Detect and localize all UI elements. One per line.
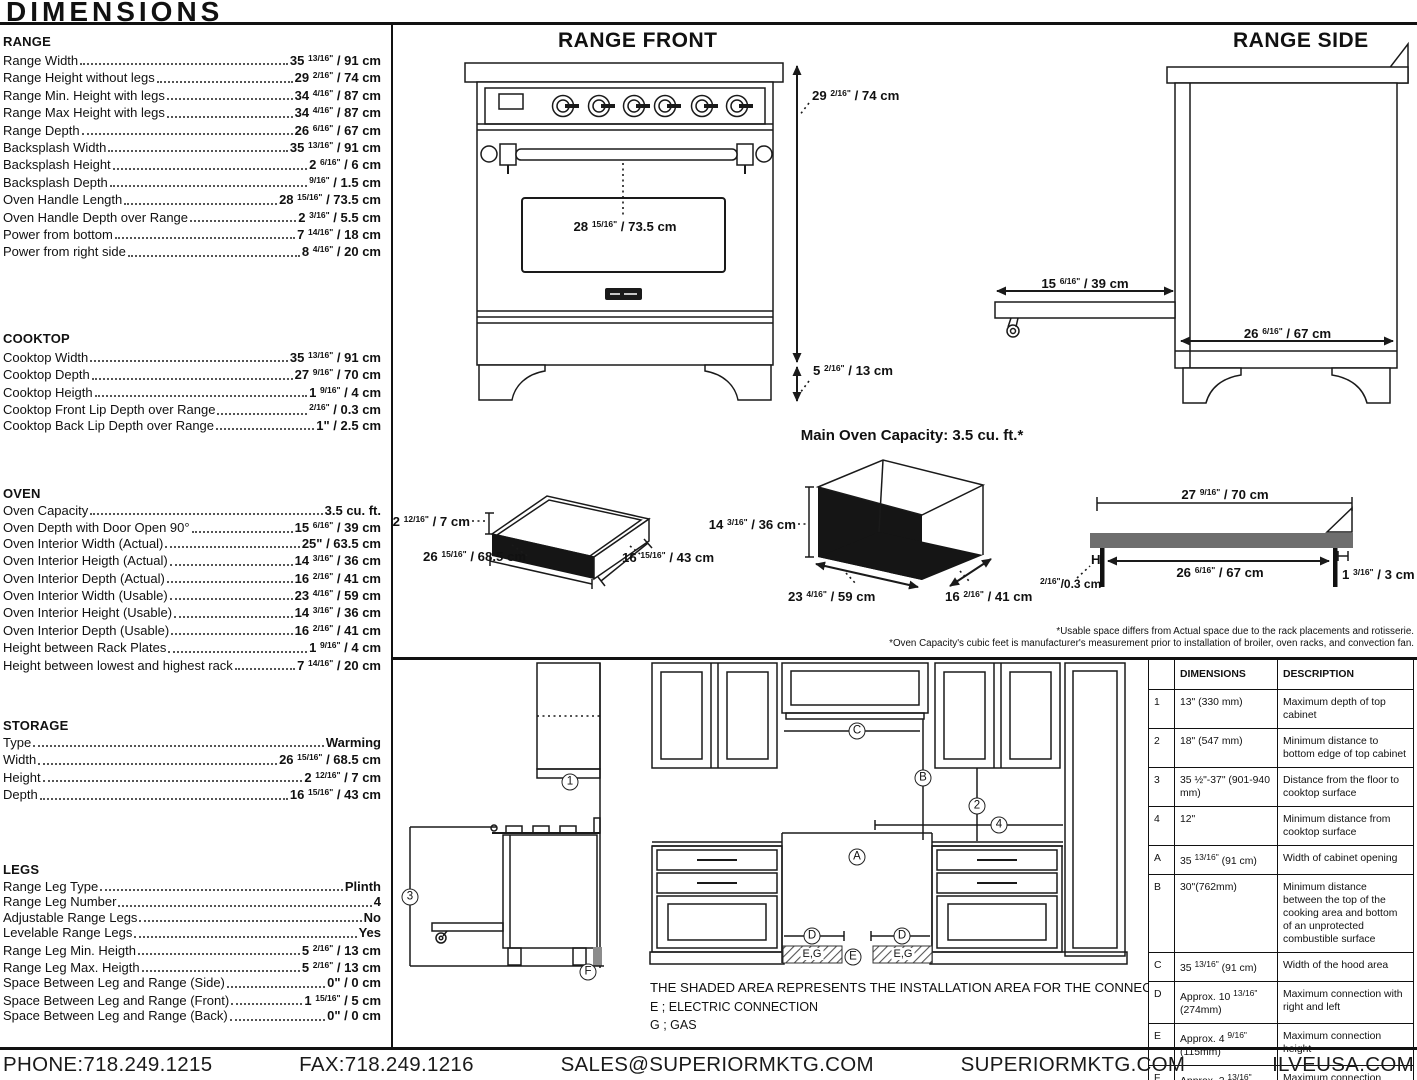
rack-top-label: 27 9/16" / 70 cm bbox=[1140, 487, 1310, 502]
spec-label: Height bbox=[3, 770, 41, 785]
dot-leader bbox=[95, 395, 307, 397]
spec-label: Range Leg Min. Heigth bbox=[3, 943, 136, 958]
spec-value: 2/16" / 0.3 cm bbox=[309, 400, 381, 417]
rack-left-label: 2/16"/0.3 cm bbox=[1040, 576, 1101, 591]
spec-value: 0" / 0 cm bbox=[327, 975, 381, 990]
range-side-depth-label: 26 6/16" / 67 cm bbox=[1200, 326, 1375, 341]
oven-depth-label: 16 2/16" / 41 cm bbox=[945, 589, 1032, 604]
table-cell-dimension: 13" (330 mm) bbox=[1175, 690, 1278, 729]
section-storage: STORAGE Type Warming Width 26 15/16" / 6… bbox=[3, 718, 381, 803]
dot-leader bbox=[90, 360, 288, 362]
dot-leader bbox=[80, 63, 288, 65]
drawer-height-label: 2 12/16" / 7 cm bbox=[375, 514, 470, 529]
dot-leader bbox=[128, 255, 300, 257]
table-cell-dimension: 35 13/16" (91 cm) bbox=[1175, 953, 1278, 982]
oven-interior-drawing bbox=[798, 460, 991, 587]
spec-label: Cooktop Back Lip Depth over Range bbox=[3, 418, 214, 433]
dot-leader bbox=[43, 780, 303, 782]
callout-A: A bbox=[849, 849, 866, 866]
range-side-drawing bbox=[995, 44, 1408, 403]
spec-label: Oven Handle Depth over Range bbox=[3, 210, 188, 225]
spec-label: Width bbox=[3, 752, 36, 767]
storage-drawer-drawing bbox=[472, 496, 652, 589]
spec-value: 16 2/16" / 41 cm bbox=[295, 569, 381, 586]
spec-value: 5 2/16" / 13 cm bbox=[302, 958, 381, 975]
table-cell-key: 4 bbox=[1149, 807, 1175, 846]
dot-leader bbox=[170, 564, 293, 566]
dot-leader bbox=[167, 98, 293, 100]
spec-label: Backsplash Width bbox=[3, 140, 106, 155]
dot-leader bbox=[110, 185, 307, 187]
spec-value: 28 15/16" / 73.5 cm bbox=[279, 190, 381, 207]
spec-label: Oven Interior Heigth (Actual) bbox=[3, 553, 168, 568]
legend-gas: G ; GAS bbox=[650, 1018, 697, 1032]
spec-row: Range Depth 26 6/16" / 67 cm bbox=[3, 121, 381, 138]
spec-label: Range Leg Number bbox=[3, 894, 116, 909]
spec-row: Cooktop Width 35 13/16" / 91 cm bbox=[3, 348, 381, 365]
range-front-leg-label: 5 2/16" / 13 cm bbox=[813, 363, 893, 378]
spec-value: 2 12/16" / 7 cm bbox=[304, 768, 381, 785]
spec-value: No bbox=[364, 910, 381, 925]
spec-label: Backsplash Height bbox=[3, 157, 111, 172]
callout-1: 1 bbox=[562, 774, 579, 791]
spec-label: Oven Depth with Door Open 90° bbox=[3, 520, 190, 535]
table-cell-description: Maximum depth of top cabinet bbox=[1278, 690, 1414, 729]
spec-label: Space Between Leg and Range (Back) bbox=[3, 1008, 228, 1023]
spec-list: Oven Capacity 3.5 cu. ft. Oven Depth wit… bbox=[3, 503, 381, 673]
spec-label: Oven Handle Length bbox=[3, 192, 122, 207]
spec-value: 3.5 cu. ft. bbox=[325, 503, 381, 518]
spec-value: 34 4/16" / 87 cm bbox=[295, 86, 381, 103]
dot-leader bbox=[168, 651, 307, 653]
oven-height-label: 14 3/16" / 36 cm bbox=[690, 517, 796, 532]
dot-leader bbox=[170, 598, 293, 600]
spec-row: Oven Interior Width (Usable) 23 4/16" / … bbox=[3, 586, 381, 603]
section-heading: OVEN bbox=[3, 486, 381, 501]
callout-3: 3 bbox=[402, 889, 419, 906]
spec-row: Oven Interior Heigth (Actual) 14 3/16" /… bbox=[3, 551, 381, 568]
spec-row: Range Leg Type Plinth bbox=[3, 879, 381, 894]
dot-leader bbox=[90, 513, 322, 515]
legend-electric: E ; ELECTRIC CONNECTION bbox=[650, 1000, 818, 1014]
spec-value: 2 6/16" / 6 cm bbox=[309, 155, 381, 172]
dot-leader bbox=[227, 986, 325, 988]
spec-label: Cooktop Front Lip Depth over Range bbox=[3, 402, 215, 417]
table-header-key bbox=[1149, 660, 1175, 690]
dot-leader bbox=[190, 220, 296, 222]
spec-label: Range Depth bbox=[3, 123, 80, 138]
spec-value: 1" / 2.5 cm bbox=[316, 418, 381, 433]
spec-value: 15 6/16" / 39 cm bbox=[295, 518, 381, 535]
spec-label: Height between lowest and highest rack bbox=[3, 658, 233, 673]
table-cell-dimension: 30"(762mm) bbox=[1175, 875, 1278, 953]
spec-row: Power from bottom 7 14/16" / 18 cm bbox=[3, 225, 381, 242]
spec-label: Range Width bbox=[3, 53, 78, 68]
spec-value: 5 2/16" / 13 cm bbox=[302, 941, 381, 958]
dot-leader bbox=[167, 581, 293, 583]
dot-leader bbox=[157, 81, 293, 83]
spec-row: Space Between Leg and Range (Front) 1 15… bbox=[3, 991, 381, 1008]
table-row: 4 12" Minimum distance from cooktop surf… bbox=[1149, 807, 1414, 846]
spec-label: Cooktop Depth bbox=[3, 367, 90, 382]
spec-row: Levelable Range Legs Yes bbox=[3, 925, 381, 940]
spec-label: Height between Rack Plates bbox=[3, 640, 166, 655]
spec-row: Cooktop Front Lip Depth over Range 2/16"… bbox=[3, 400, 381, 417]
spec-row: Cooktop Heigth 1 9/16" / 4 cm bbox=[3, 383, 381, 400]
spec-label: Range Leg Type bbox=[3, 879, 98, 894]
dot-leader bbox=[115, 237, 295, 239]
range-front-height-label: 29 2/16" / 74 cm bbox=[812, 88, 899, 103]
spec-value: 9/16" / 1.5 cm bbox=[309, 173, 381, 190]
table-cell-key: B bbox=[1149, 875, 1175, 953]
dot-leader bbox=[231, 1003, 302, 1005]
callout-4: 4 bbox=[991, 817, 1008, 834]
spec-row: Oven Handle Length 28 15/16" / 73.5 cm bbox=[3, 190, 381, 207]
table-row: C 35 13/16" (91 cm) Width of the hood ar… bbox=[1149, 953, 1414, 982]
spec-list: Cooktop Width 35 13/16" / 91 cm Cooktop … bbox=[3, 348, 381, 433]
range-front-title: RANGE FRONT bbox=[558, 29, 706, 53]
rack-inner-label: 26 6/16" / 67 cm bbox=[1135, 565, 1305, 580]
spec-label: Space Between Leg and Range (Side) bbox=[3, 975, 225, 990]
callout-C: C bbox=[849, 723, 866, 740]
spec-label: Oven Interior Depth (Actual) bbox=[3, 571, 165, 586]
spec-value: 14 3/16" / 36 cm bbox=[295, 551, 381, 568]
table-cell-description: Maximum connection with right and left bbox=[1278, 982, 1414, 1024]
table-cell-dimension: 35 13/16" (91 cm) bbox=[1175, 846, 1278, 875]
dimensions-table: DIMENSIONS DESCRIPTION 1 13" (330 mm) Ma… bbox=[1148, 659, 1414, 1080]
table-header-row: DIMENSIONS DESCRIPTION bbox=[1149, 660, 1414, 690]
dot-leader bbox=[216, 428, 314, 430]
oven-capacity-title: Main Oven Capacity: 3.5 cu. ft.* bbox=[797, 427, 1027, 444]
table-row: 1 13" (330 mm) Maximum depth of top cabi… bbox=[1149, 690, 1414, 729]
spec-label: Oven Interior Height (Usable) bbox=[3, 605, 172, 620]
spec-row: Oven Capacity 3.5 cu. ft. bbox=[3, 503, 381, 518]
footnote-usable-space: *Usable space differs from Actual space … bbox=[1056, 626, 1414, 637]
shaded-area-label-right: E,G bbox=[892, 948, 915, 960]
table-cell-key: D bbox=[1149, 982, 1175, 1024]
spec-value: 16 15/16" / 43 cm bbox=[290, 785, 381, 802]
table-cell-dimension: Approx. 10 13/16" (274mm) bbox=[1175, 982, 1278, 1024]
spec-label: Power from right side bbox=[3, 244, 126, 259]
spec-label: Cooktop Width bbox=[3, 350, 88, 365]
dot-leader bbox=[235, 668, 295, 670]
spec-row: Space Between Leg and Range (Back) 0" / … bbox=[3, 1008, 381, 1023]
spec-list: Range Width 35 13/16" / 91 cm Range Heig… bbox=[3, 51, 381, 260]
spec-row: Oven Interior Height (Usable) 14 3/16" /… bbox=[3, 603, 381, 620]
spec-label: Oven Interior Depth (Usable) bbox=[3, 623, 169, 638]
spec-row: Range Max Height with legs 34 4/16" / 87… bbox=[3, 103, 381, 120]
spec-label: Levelable Range Legs bbox=[3, 925, 132, 940]
spec-value: 1 15/16" / 5 cm bbox=[304, 991, 381, 1008]
dot-leader bbox=[142, 970, 300, 972]
dot-leader bbox=[138, 953, 300, 955]
table-header-description: DESCRIPTION bbox=[1278, 660, 1414, 690]
spec-label: Range Max Height with legs bbox=[3, 105, 165, 120]
spec-value: 7 14/16" / 18 cm bbox=[297, 225, 381, 242]
table-row: 3 35 ½"-37" (901-940 mm) Distance from t… bbox=[1149, 768, 1414, 807]
spec-row: Oven Interior Width (Actual) 25" / 63.5 … bbox=[3, 536, 381, 551]
spec-row: Oven Handle Depth over Range 2 3/16" / 5… bbox=[3, 208, 381, 225]
spec-label: Oven Interior Width (Usable) bbox=[3, 588, 168, 603]
dot-leader bbox=[113, 168, 307, 170]
dot-leader bbox=[92, 378, 293, 380]
spec-label: Cooktop Heigth bbox=[3, 385, 93, 400]
range-side-title: RANGE SIDE bbox=[1233, 29, 1359, 53]
drawer-width-label: 26 15/16" / 68.5 cm bbox=[423, 549, 526, 564]
spec-row: Cooktop Depth 27 9/16" / 70 cm bbox=[3, 365, 381, 382]
spec-value: 34 4/16" / 87 cm bbox=[295, 103, 381, 120]
spec-row: Range Leg Max. Heigth 5 2/16" / 13 cm bbox=[3, 958, 381, 975]
dot-leader bbox=[174, 616, 293, 618]
callout-D-left: D bbox=[804, 928, 821, 945]
dot-leader bbox=[134, 936, 356, 938]
spec-label: Type bbox=[3, 735, 31, 750]
table-cell-description: Minimum distance between the top of the … bbox=[1278, 875, 1414, 953]
rack-h-label: H bbox=[1091, 552, 1101, 567]
dot-leader bbox=[40, 798, 288, 800]
spec-value: 27 9/16" / 70 cm bbox=[295, 365, 381, 382]
footer-item: PHONE:718.249.1215 bbox=[3, 1053, 212, 1077]
range-front-handle-label: 28 15/16" / 73.5 cm bbox=[555, 219, 695, 234]
spec-value: 35 13/16" / 91 cm bbox=[290, 138, 381, 155]
footer-bar: PHONE:718.249.1215 FAX:718.249.1216 SALE… bbox=[0, 1047, 1417, 1080]
dot-leader bbox=[171, 633, 292, 635]
spec-value: 35 13/16" / 91 cm bbox=[290, 51, 381, 68]
spec-row: Width 26 15/16" / 68.5 cm bbox=[3, 750, 381, 767]
spec-value: 25" / 63.5 cm bbox=[302, 536, 381, 551]
section-heading: STORAGE bbox=[3, 718, 381, 733]
spec-value: 23 4/16" / 59 cm bbox=[295, 586, 381, 603]
spec-label: Range Height without legs bbox=[3, 70, 155, 85]
table-header-dimensions: DIMENSIONS bbox=[1175, 660, 1278, 690]
dot-leader bbox=[108, 150, 288, 152]
spec-value: 35 13/16" / 91 cm bbox=[290, 348, 381, 365]
spec-label: Adjustable Range Legs bbox=[3, 910, 137, 925]
spec-value: Yes bbox=[359, 925, 381, 940]
spec-value: Plinth bbox=[345, 879, 381, 894]
spec-row: Type Warming bbox=[3, 735, 381, 750]
callout-D-right: D bbox=[894, 928, 911, 945]
drawer-depth-label: 16 15/16" / 43 cm bbox=[622, 550, 714, 565]
table-row: D Approx. 10 13/16" (274mm) Maximum conn… bbox=[1149, 982, 1414, 1024]
spec-row: Oven Interior Depth (Actual) 16 2/16" / … bbox=[3, 569, 381, 586]
spec-value: 14 3/16" / 36 cm bbox=[295, 603, 381, 620]
spec-row: Power from right side 8 4/16" / 20 cm bbox=[3, 242, 381, 259]
spec-value: 7 14/16" / 20 cm bbox=[297, 656, 381, 673]
footer-item: SUPERIORMKTG.COM bbox=[961, 1053, 1186, 1077]
install-side-view-drawing bbox=[410, 663, 604, 968]
table-cell-description: Width of cabinet opening bbox=[1278, 846, 1414, 875]
section-legs: LEGS Range Leg Type Plinth Range Leg Num… bbox=[3, 862, 381, 1024]
dot-leader bbox=[33, 745, 324, 747]
spec-label: Depth bbox=[3, 787, 38, 802]
spec-value: 16 2/16" / 41 cm bbox=[295, 621, 381, 638]
spec-row: Backsplash Height 2 6/16" / 6 cm bbox=[3, 155, 381, 172]
range-side-door-label: 15 6/16" / 39 cm bbox=[1000, 276, 1170, 291]
spec-row: Range Leg Min. Heigth 5 2/16" / 13 cm bbox=[3, 941, 381, 958]
table-cell-dimension: 18" (547 mm) bbox=[1175, 729, 1278, 768]
spec-row: Backsplash Width 35 13/16" / 91 cm bbox=[3, 138, 381, 155]
dot-leader bbox=[100, 889, 343, 891]
section-heading: LEGS bbox=[3, 862, 381, 877]
callout-F: F bbox=[580, 964, 597, 981]
spec-label: Range Min. Height with legs bbox=[3, 88, 165, 103]
footer-item: FAX:718.249.1216 bbox=[299, 1053, 474, 1077]
section-range: RANGE Range Width 35 13/16" / 91 cm Rang… bbox=[3, 34, 381, 260]
table-cell-key: A bbox=[1149, 846, 1175, 875]
spec-value: 2 3/16" / 5.5 cm bbox=[298, 208, 381, 225]
spec-row: Range Min. Height with legs 34 4/16" / 8… bbox=[3, 86, 381, 103]
spec-row: Oven Depth with Door Open 90° 15 6/16" /… bbox=[3, 518, 381, 535]
table-cell-description: Width of the hood area bbox=[1278, 953, 1414, 982]
dimensions-sheet: DIMENSIONS RANGE Range Width 35 13/16" /… bbox=[0, 0, 1417, 1080]
spec-row: Height between lowest and highest rack 7… bbox=[3, 656, 381, 673]
dot-leader bbox=[230, 1019, 325, 1021]
spec-value: 1 9/16" / 4 cm bbox=[309, 638, 381, 655]
spec-value: 4 bbox=[374, 894, 381, 909]
section-heading: COOKTOP bbox=[3, 331, 381, 346]
table-cell-description: Minimum distance from cooktop surface bbox=[1278, 807, 1414, 846]
table-row: A 35 13/16" (91 cm) Width of cabinet ope… bbox=[1149, 846, 1414, 875]
dot-leader bbox=[192, 531, 293, 533]
spec-row: Adjustable Range Legs No bbox=[3, 910, 381, 925]
spec-value: 8 4/16" / 20 cm bbox=[302, 242, 381, 259]
dot-leader bbox=[38, 763, 277, 765]
dot-leader bbox=[167, 116, 293, 118]
spec-label: Backsplash Depth bbox=[3, 175, 108, 190]
table-row: B 30"(762mm) Minimum distance between th… bbox=[1149, 875, 1414, 953]
dot-leader bbox=[217, 413, 307, 415]
install-front-view-drawing bbox=[650, 663, 1127, 964]
dot-leader bbox=[139, 920, 361, 922]
table-cell-key: 1 bbox=[1149, 690, 1175, 729]
spec-row: Range Leg Number 4 bbox=[3, 894, 381, 909]
table-cell-description: Distance from the floor to cooktop surfa… bbox=[1278, 768, 1414, 807]
callout-B: B bbox=[915, 770, 932, 787]
spec-list: Range Leg Type Plinth Range Leg Number 4… bbox=[3, 879, 381, 1024]
spec-row: Oven Interior Depth (Usable) 16 2/16" / … bbox=[3, 621, 381, 638]
footer-item: SALES@SUPERIORMKTG.COM bbox=[561, 1053, 874, 1077]
section-oven: OVEN Oven Capacity 3.5 cu. ft. Oven Dept… bbox=[3, 486, 381, 673]
table-cell-key: C bbox=[1149, 953, 1175, 982]
footnote-oven-capacity: *Oven Capacity's cubic feet is manufactu… bbox=[889, 638, 1414, 649]
table-cell-key: 3 bbox=[1149, 768, 1175, 807]
footer-item: ILVEUSA.COM bbox=[1272, 1053, 1414, 1077]
spec-row: Height between Rack Plates 1 9/16" / 4 c… bbox=[3, 638, 381, 655]
callout-2: 2 bbox=[969, 798, 986, 815]
spec-row: Height 2 12/16" / 7 cm bbox=[3, 768, 381, 785]
oven-width-label: 23 4/16" / 59 cm bbox=[788, 589, 875, 604]
spec-row: Space Between Leg and Range (Side) 0" / … bbox=[3, 975, 381, 990]
spec-value: Warming bbox=[326, 735, 381, 750]
spec-row: Cooktop Back Lip Depth over Range 1" / 2… bbox=[3, 418, 381, 433]
installation-note: THE SHADED AREA REPRESENTS THE INSTALLAT… bbox=[650, 980, 1196, 995]
spec-list: Type Warming Width 26 15/16" / 68.5 cm H… bbox=[3, 735, 381, 803]
table-row: 2 18" (547 mm) Minimum distance to botto… bbox=[1149, 729, 1414, 768]
dot-leader bbox=[118, 905, 371, 907]
dot-leader bbox=[165, 546, 299, 548]
table-cell-description: Minimum distance to bottom edge of top c… bbox=[1278, 729, 1414, 768]
spec-row: Range Width 35 13/16" / 91 cm bbox=[3, 51, 381, 68]
section-heading: RANGE bbox=[3, 34, 381, 49]
table-cell-dimension: 35 ½"-37" (901-940 mm) bbox=[1175, 768, 1278, 807]
spec-value: 0" / 0 cm bbox=[327, 1008, 381, 1023]
shaded-area-label-left: E,G bbox=[801, 948, 824, 960]
table-cell-dimension: 12" bbox=[1175, 807, 1278, 846]
section-cooktop: COOKTOP Cooktop Width 35 13/16" / 91 cm … bbox=[3, 331, 381, 433]
spec-value: 1 9/16" / 4 cm bbox=[309, 383, 381, 400]
spec-label: Range Leg Max. Heigth bbox=[3, 960, 140, 975]
spec-value: 26 15/16" / 68.5 cm bbox=[279, 750, 381, 767]
spec-value: 29 2/16" / 74 cm bbox=[295, 68, 381, 85]
spec-label: Power from bottom bbox=[3, 227, 113, 242]
spec-label: Oven Interior Width (Actual) bbox=[3, 536, 163, 551]
spec-row: Depth 16 15/16" / 43 cm bbox=[3, 785, 381, 802]
rack-right-label: 1 3/16" / 3 cm bbox=[1342, 567, 1415, 582]
callout-E: E bbox=[845, 949, 862, 966]
spec-label: Space Between Leg and Range (Front) bbox=[3, 993, 229, 1008]
spec-row: Range Height without legs 29 2/16" / 74 … bbox=[3, 68, 381, 85]
spec-value: 26 6/16" / 67 cm bbox=[295, 121, 381, 138]
table-cell-key: 2 bbox=[1149, 729, 1175, 768]
dot-leader bbox=[82, 133, 293, 135]
spec-label: Oven Capacity bbox=[3, 503, 88, 518]
dot-leader bbox=[124, 203, 277, 205]
spec-row: Backsplash Depth 9/16" / 1.5 cm bbox=[3, 173, 381, 190]
